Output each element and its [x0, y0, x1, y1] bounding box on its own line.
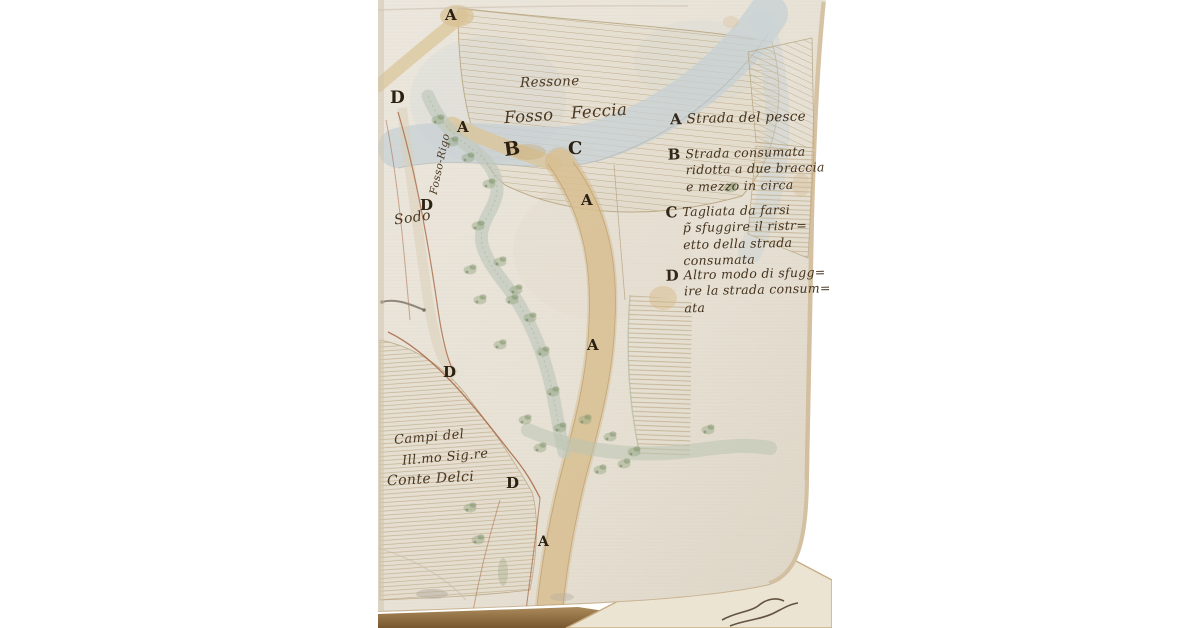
legend-text: etto della strada: [683, 234, 808, 253]
map-label-a-top: A: [445, 8, 457, 23]
map-label-d-upper-left: D: [390, 90, 405, 107]
legend-key-a: A: [670, 111, 682, 127]
legend-item-d: D Altro modo di sfugg= ire la strada con…: [666, 264, 832, 316]
legend-key-c: C: [665, 204, 677, 220]
legend-text: ridotta a due braccia: [686, 160, 825, 179]
place-name-ressone: Ressone: [520, 73, 580, 91]
map-label-c: C: [568, 140, 582, 158]
legend-key-d: D: [666, 267, 679, 283]
legend-text: Strada del pesce: [686, 109, 806, 128]
map-label-d-field-upper: D: [443, 365, 456, 380]
legend-key-b: B: [668, 146, 681, 162]
map-label-d-field-lower: D: [506, 476, 519, 491]
legend-text: p̃ sfuggire il ristr=: [683, 218, 808, 237]
legend-item-b: B Strada consumata ridotta a due braccia…: [668, 143, 826, 195]
legend-text: e mezzo in circa: [686, 176, 825, 195]
legend-item-c: C Tagliata da farsi p̃ sfuggire il ristr…: [665, 202, 808, 270]
map-label-b: B: [503, 139, 522, 160]
legend-item-a: A Strada del pesce: [670, 109, 806, 128]
hatched-field-mid-right: [628, 295, 692, 458]
legend-text: ata: [684, 297, 831, 316]
map-label-a-bottom: A: [538, 535, 549, 549]
map-label-a-mid-lower: A: [587, 338, 599, 353]
hatched-field-top-right-1: [748, 38, 814, 148]
manuscript-map-photo: A D A B C A D A D D A Ressone Fosso Fecc…: [0, 0, 1200, 628]
legend-text: ire la strada consum=: [684, 281, 831, 300]
manuscript-page: A D A B C A D A D D A Ressone Fosso Fecc…: [378, 0, 832, 628]
map-label-a-road-b: A: [457, 120, 469, 135]
map-label-a-mid-upper: A: [581, 193, 593, 208]
